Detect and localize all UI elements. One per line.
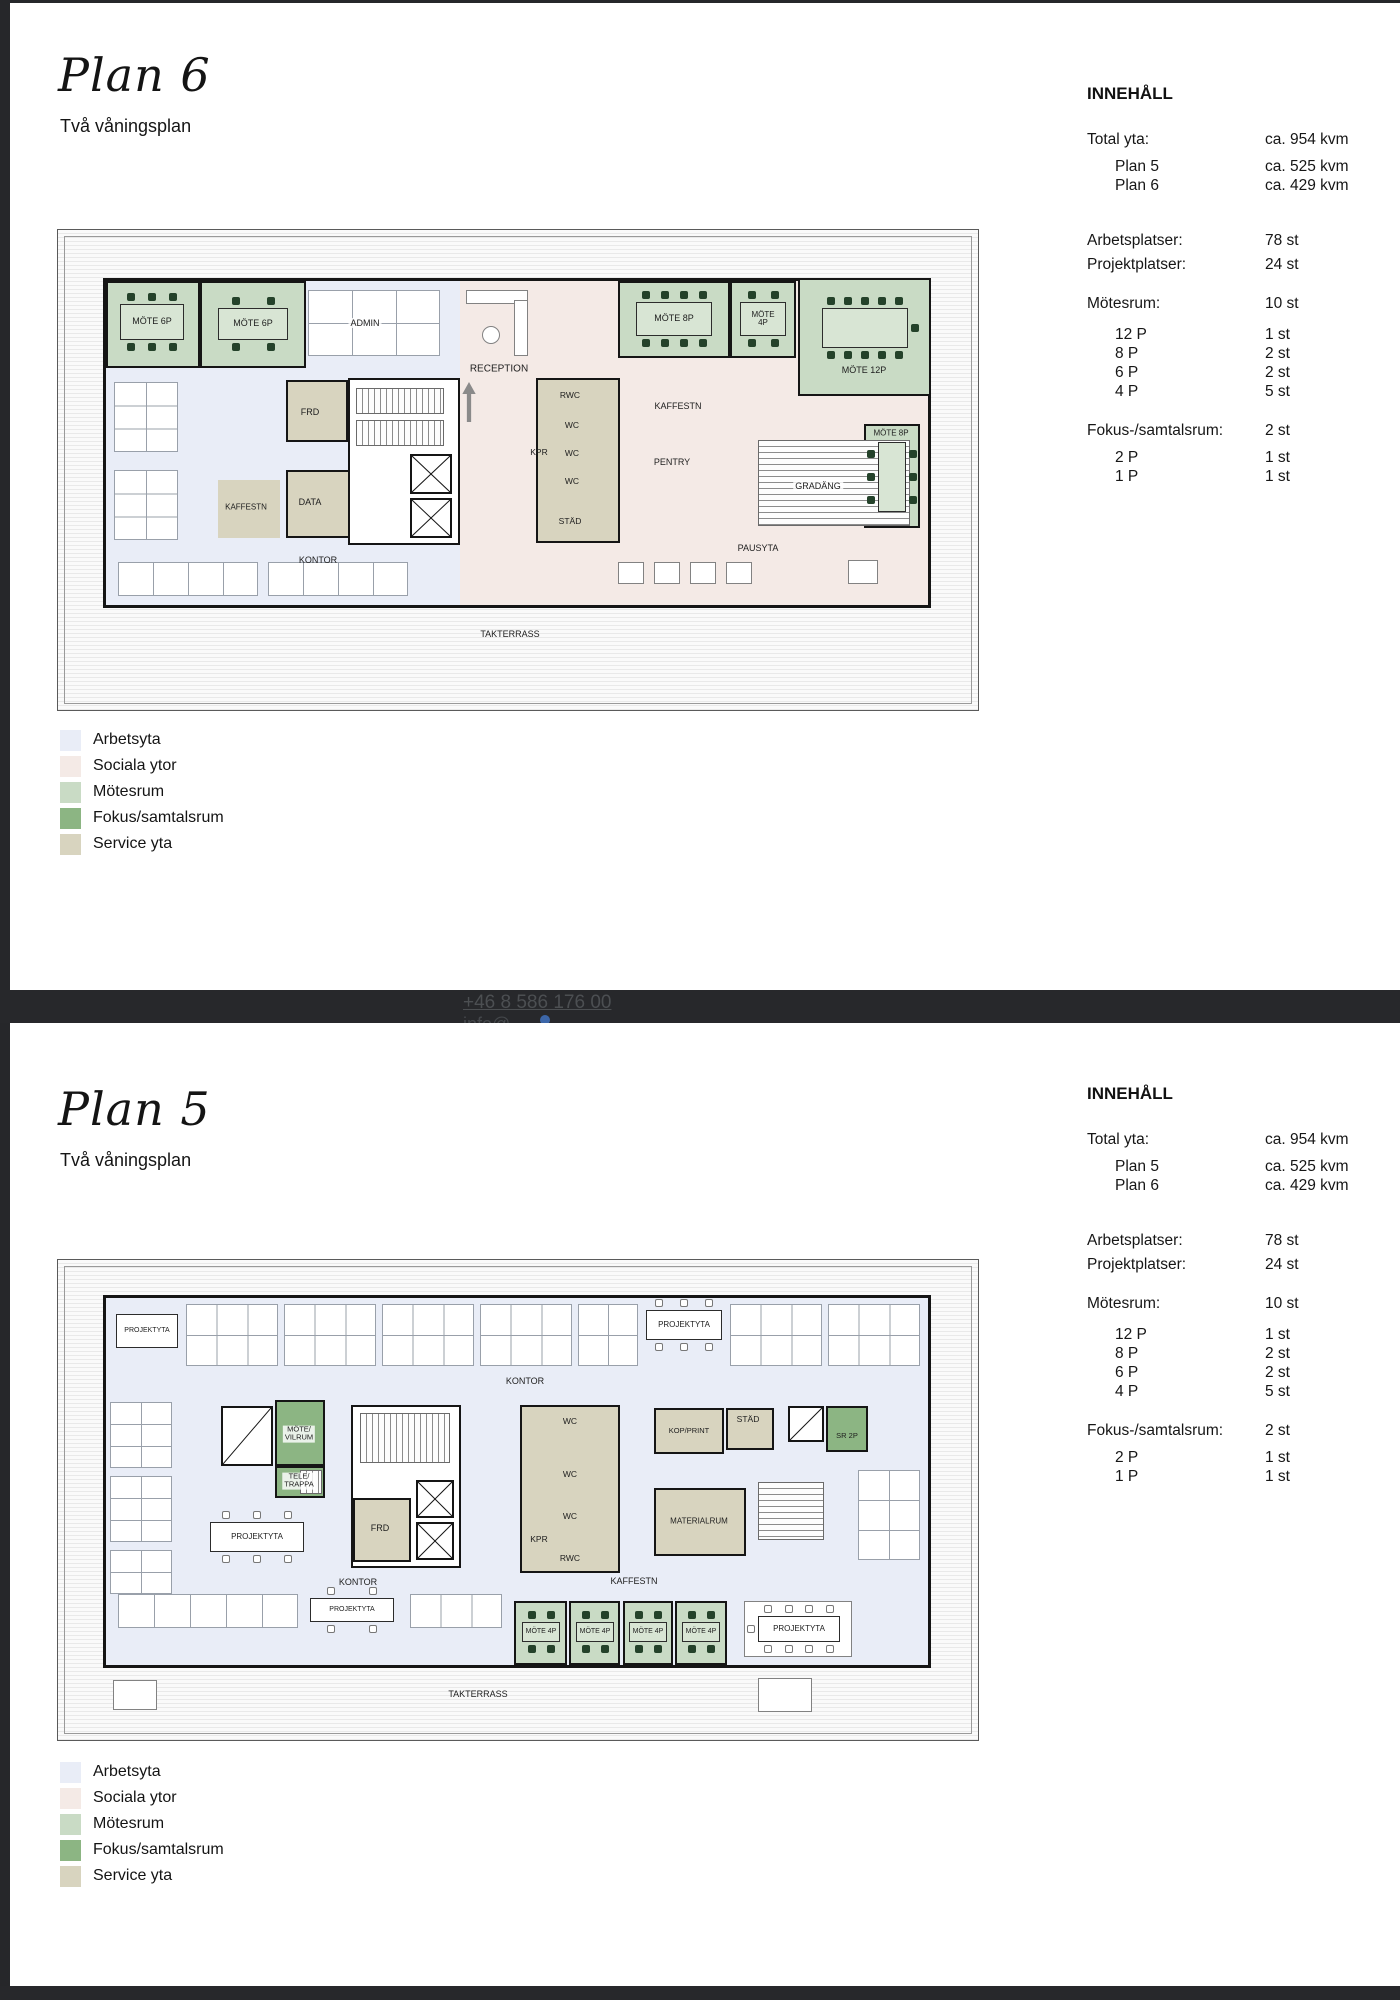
plan-label-kontor: KONTOR: [299, 555, 337, 565]
innehall-rows: Total yta:ca. 954 kvmPlan 5ca. 525 kvmPl…: [1087, 130, 1387, 486]
plan-label-städ: STÄD: [737, 1415, 760, 1425]
plan-label-wc: WC: [563, 1470, 577, 1480]
innehall-row-value: 2 st: [1265, 421, 1290, 440]
innehall-row-value: 24 st: [1265, 1255, 1299, 1274]
plan-outline: [758, 1678, 812, 1712]
legend-swatch: [60, 808, 81, 829]
innehall-row-label: Total yta:: [1087, 130, 1265, 149]
plan-label-materialrum: MATERIALRUM: [670, 1518, 728, 1527]
innehall-row-label: 8 P: [1087, 1344, 1265, 1363]
plan-elevator: [410, 454, 452, 494]
plan-desks: [186, 1304, 278, 1366]
innehall-row-value: 1 st: [1265, 325, 1290, 344]
innehall-row: Plan 6ca. 429 kvm: [1087, 1176, 1387, 1195]
plan-table-möte-8p: MÖTE 8P: [636, 302, 712, 336]
plan-label-möte-8p: MÖTE 8P: [873, 430, 908, 439]
chair-icon: [148, 293, 156, 301]
chair-icon: [878, 351, 886, 359]
plan-outline: [113, 1680, 157, 1710]
innehall-row: Fokus-/samtalsrum:2 st: [1087, 1421, 1387, 1440]
innehall-row: 4 P5 st: [1087, 1382, 1387, 1401]
innehall-row: Mötesrum:10 st: [1087, 1294, 1387, 1313]
plan-desks: [268, 562, 408, 596]
plan-table: [878, 442, 906, 512]
chair-icon: [707, 1645, 715, 1653]
legend-item: Service yta: [60, 831, 224, 857]
plan-label-wc: WC: [565, 449, 579, 459]
chair-icon: [867, 450, 875, 458]
innehall-row-value: 1 st: [1265, 1467, 1290, 1486]
plan-desks: [410, 1594, 502, 1628]
plan-stairs: [360, 1413, 450, 1463]
plan-label-sr-2p: SR 2P: [836, 1432, 858, 1440]
innehall-row: 8 P2 st: [1087, 344, 1387, 363]
chair-icon: [222, 1511, 230, 1519]
innehall-row: 12 P1 st: [1087, 1325, 1387, 1344]
plan-desks: [118, 562, 258, 596]
plan-label-reception: RECEPTION: [470, 363, 528, 374]
innehall-row-label: Mötesrum:: [1087, 294, 1265, 313]
chair-icon: [528, 1611, 536, 1619]
plan-label-gradäng: GRADÄNG: [793, 481, 843, 491]
plan-label-kaffestn: KAFFESTN: [225, 504, 267, 513]
innehall-row: Mötesrum:10 st: [1087, 294, 1387, 313]
chair-icon: [680, 1299, 688, 1307]
plan-room: [826, 1406, 868, 1452]
chair-icon: [764, 1605, 772, 1613]
plan-elevator: [416, 1522, 454, 1560]
innehall-row-value: 10 st: [1265, 1294, 1299, 1313]
chair-icon: [635, 1645, 643, 1653]
innehall-row-label: Mötesrum:: [1087, 1294, 1265, 1313]
legend-label: Sociala ytor: [93, 757, 177, 775]
entry-arrow-icon: [462, 382, 476, 422]
innehall-row-label: Plan 6: [1087, 176, 1265, 195]
innehall-row-label: Fokus-/samtalsrum:: [1087, 421, 1265, 440]
innehall-heading: INNEHÅLL: [1087, 1084, 1387, 1104]
chair-icon: [680, 1343, 688, 1351]
legend: ArbetsytaSociala ytorMötesrumFokus/samta…: [60, 1759, 224, 1889]
chair-icon: [169, 293, 177, 301]
innehall-row: 1 P1 st: [1087, 467, 1387, 486]
legend-item: Mötesrum: [60, 779, 224, 805]
page-canvas: Plan 6 Två våningsplan INNEHÅLL Total yt…: [0, 0, 1400, 2000]
plan-label-kaffestn: KAFFESTN: [610, 1576, 657, 1586]
chair-icon: [911, 324, 919, 332]
plan-desks: [114, 470, 178, 540]
plan-table-möte-4p: MÖTE 4P: [522, 1622, 560, 1642]
innehall-row-value: ca. 954 kvm: [1265, 1130, 1349, 1149]
chair-icon: [844, 351, 852, 359]
chair-icon: [148, 343, 156, 351]
legend-item: Sociala ytor: [60, 1785, 224, 1811]
legend-label: Fokus/samtalsrum: [93, 1841, 224, 1859]
innehall-row: 8 P2 st: [1087, 1344, 1387, 1363]
plan-table-möte-4p: MÖTE 4P: [576, 1622, 614, 1642]
chair-icon: [785, 1645, 793, 1653]
plan-label-kontor: KONTOR: [506, 1376, 544, 1386]
innehall-row: 12 P1 st: [1087, 325, 1387, 344]
plan-desks: [110, 1402, 172, 1468]
plan-label-rwc: RWC: [560, 1554, 580, 1564]
innehall-row-label: 8 P: [1087, 344, 1265, 363]
chair-icon: [267, 297, 275, 305]
legend-swatch: [60, 834, 81, 855]
chair-icon: [827, 297, 835, 305]
legend-item: Service yta: [60, 1863, 224, 1889]
chair-icon: [909, 496, 917, 504]
legend-item: Mötesrum: [60, 1811, 224, 1837]
plan-label-takterrass: TAKTERRASS: [480, 629, 539, 639]
chair-icon: [642, 339, 650, 347]
chair-icon: [327, 1625, 335, 1633]
chair-icon: [127, 343, 135, 351]
plan-xbox: [788, 1406, 824, 1442]
innehall-row-value: 24 st: [1265, 255, 1299, 274]
legend-item: Fokus/samtalsrum: [60, 805, 224, 831]
plan-table-projektyta: PROJEKTYTA: [758, 1616, 840, 1642]
innehall-row-label: Plan 6: [1087, 1176, 1265, 1195]
innehall-row-label: 2 P: [1087, 1448, 1265, 1467]
plan-circ: [482, 326, 500, 344]
plan-outline: [654, 562, 680, 584]
plan-label-kpr: KPR: [530, 1535, 547, 1545]
chair-icon: [764, 1645, 772, 1653]
plan-label-takterrass: TAKTERRASS: [448, 1689, 507, 1699]
legend-label: Arbetsyta: [93, 731, 161, 749]
chair-icon: [267, 343, 275, 351]
legend-label: Mötesrum: [93, 783, 164, 801]
legend-item: Sociala ytor: [60, 753, 224, 779]
innehall-heading: INNEHÅLL: [1087, 84, 1387, 104]
innehall-row-label: 1 P: [1087, 1467, 1265, 1486]
floorplan-plan6: MÖTE 6PMÖTE 6PMÖTE 8PMÖTE 4PADMINRECEPTI…: [57, 229, 979, 711]
innehall-row-label: Fokus-/samtalsrum:: [1087, 1421, 1265, 1440]
plan-label-wc: WC: [563, 1417, 577, 1427]
chair-icon: [747, 1625, 755, 1633]
chair-icon: [582, 1611, 590, 1619]
plan-stairs: [356, 388, 444, 414]
chair-icon: [369, 1587, 377, 1595]
innehall-row-label: Arbetsplatser:: [1087, 1231, 1265, 1250]
chair-icon: [547, 1611, 555, 1619]
innehall-row-label: 2 P: [1087, 448, 1265, 467]
chair-icon: [827, 351, 835, 359]
plan-label-wc: WC: [563, 1512, 577, 1522]
legend-label: Mötesrum: [93, 1815, 164, 1833]
chair-icon: [661, 339, 669, 347]
plan-label-kop-print: KOP/PRINT: [669, 1427, 709, 1435]
page-subtitle: Två våningsplan: [60, 116, 191, 137]
legend-item: Arbetsyta: [60, 1759, 224, 1785]
chair-icon: [601, 1611, 609, 1619]
legend-swatch: [60, 1866, 81, 1887]
innehall-row-value: ca. 525 kvm: [1265, 157, 1349, 176]
plan-desks: [730, 1304, 822, 1366]
chair-icon: [861, 351, 869, 359]
plan-label-städ: STÄD: [559, 517, 582, 527]
legend: ArbetsytaSociala ytorMötesrumFokus/samta…: [60, 727, 224, 857]
plan-desks: [480, 1304, 572, 1366]
floorplan-plan5: MÖTE 4PMÖTE 4PMÖTE 4PMÖTE 4PPROJEKTYTAPR…: [57, 1259, 979, 1741]
innehall-row: 2 P1 st: [1087, 1448, 1387, 1467]
innehall-row: 2 P1 st: [1087, 448, 1387, 467]
plan-table-möte-4p: MÖTE 4P: [629, 1622, 667, 1642]
chair-icon: [528, 1645, 536, 1653]
plan-outline: [848, 560, 878, 584]
chair-icon: [232, 343, 240, 351]
innehall-row-value: 1 st: [1265, 467, 1290, 486]
plan-desks: [578, 1304, 638, 1366]
chair-icon: [169, 343, 177, 351]
chair-icon: [654, 1611, 662, 1619]
plan-table-möte-6p: MÖTE 6P: [120, 304, 184, 340]
innehall-row-value: 78 st: [1265, 1231, 1299, 1250]
innehall-row: 6 P2 st: [1087, 363, 1387, 382]
legend-swatch: [60, 1788, 81, 1809]
innehall-row-label: 6 P: [1087, 363, 1265, 382]
plan-outline: [514, 300, 528, 356]
chair-icon: [805, 1605, 813, 1613]
legend-swatch: [60, 1762, 81, 1783]
plan-table-projektyta: PROJEKTYTA: [646, 1310, 722, 1340]
plan-label-kontor: KONTOR: [339, 1577, 377, 1587]
chair-icon: [844, 297, 852, 305]
plan-label-admin: ADMIN: [349, 318, 382, 328]
chair-icon: [369, 1625, 377, 1633]
innehall-row-label: 6 P: [1087, 1363, 1265, 1382]
plan-desks: [382, 1304, 474, 1366]
plan-outline: [726, 562, 752, 584]
plan-desks: [110, 1550, 172, 1594]
plan-room: [520, 1405, 620, 1573]
innehall-row-value: 2 st: [1265, 1344, 1290, 1363]
chair-icon: [705, 1343, 713, 1351]
plan-label-frd: FRD: [371, 1523, 390, 1533]
innehall-row-value: 10 st: [1265, 294, 1299, 313]
plan-desks: [114, 382, 178, 452]
chair-icon: [826, 1605, 834, 1613]
plan-outline: [618, 562, 644, 584]
innehall-row: 6 P2 st: [1087, 1363, 1387, 1382]
page-title: Plan 6: [58, 48, 211, 102]
top-edge-bar: [0, 0, 1400, 3]
innehall-row-label: Plan 5: [1087, 157, 1265, 176]
innehall-row: Arbetsplatser:78 st: [1087, 1231, 1387, 1250]
legend-swatch: [60, 1840, 81, 1861]
innehall-row: 1 P1 st: [1087, 1467, 1387, 1486]
plan-desks: [118, 1594, 298, 1628]
innehall-panel: INNEHÅLL Total yta:ca. 954 kvmPlan 5ca. …: [1087, 84, 1387, 486]
chair-icon: [688, 1645, 696, 1653]
chair-icon: [867, 473, 875, 481]
chair-icon: [771, 339, 779, 347]
innehall-row: Projektplatser:24 st: [1087, 1255, 1387, 1274]
page-title: Plan 5: [58, 1082, 211, 1136]
bottom-separator-band: [0, 1986, 1400, 2000]
legend-swatch: [60, 782, 81, 803]
chair-icon: [601, 1645, 609, 1653]
plan-stairs: [758, 1482, 824, 1540]
innehall-row: Projektplatser:24 st: [1087, 255, 1387, 274]
plan-table-möte-4p: MÖTE 4P: [740, 302, 786, 336]
plan-desks: [858, 1470, 920, 1560]
plan-label-data: DATA: [299, 497, 322, 507]
chair-icon: [707, 1611, 715, 1619]
plan-table-projektyta: PROJEKTYTA: [116, 1314, 178, 1348]
plan-desks: [110, 1476, 172, 1542]
innehall-rows: Total yta:ca. 954 kvmPlan 5ca. 525 kvmPl…: [1087, 1130, 1387, 1486]
innehall-row: 4 P5 st: [1087, 382, 1387, 401]
innehall-row-value: ca. 429 kvm: [1265, 1176, 1349, 1195]
chair-icon: [547, 1645, 555, 1653]
phone-link[interactable]: +46 8 586 176 00: [463, 992, 611, 1014]
chair-icon: [327, 1587, 335, 1595]
chair-icon: [127, 293, 135, 301]
innehall-row-value: 2 st: [1265, 1363, 1290, 1382]
page-separator-band: +46 8 586 176 00 info@: [0, 990, 1400, 1023]
chair-icon: [655, 1343, 663, 1351]
innehall-row: Plan 6ca. 429 kvm: [1087, 176, 1387, 195]
legend-label: Sociala ytor: [93, 1789, 177, 1807]
chair-icon: [785, 1605, 793, 1613]
chair-icon: [748, 339, 756, 347]
innehall-row-value: 1 st: [1265, 1448, 1290, 1467]
innehall-row: Total yta:ca. 954 kvm: [1087, 130, 1387, 149]
page-plan6: Plan 6 Två våningsplan INNEHÅLL Total yt…: [0, 0, 1400, 990]
plan-label-wc: WC: [565, 421, 579, 431]
innehall-row-label: Projektplatser:: [1087, 255, 1265, 274]
innehall-row-value: 5 st: [1265, 1382, 1290, 1401]
innehall-row-label: Arbetsplatser:: [1087, 231, 1265, 250]
innehall-row-label: 1 P: [1087, 467, 1265, 486]
plan-table-projektyta: PROJEKTYTA: [210, 1522, 304, 1552]
plan-elevator: [410, 498, 452, 538]
innehall-row-value: 1 st: [1265, 1325, 1290, 1344]
chair-icon: [582, 1645, 590, 1653]
chair-icon: [895, 297, 903, 305]
legend-item: Fokus/samtalsrum: [60, 1837, 224, 1863]
innehall-row-label: 12 P: [1087, 1325, 1265, 1344]
plan-label-frd: FRD: [301, 407, 320, 417]
plan-label-wc: WC: [565, 477, 579, 487]
innehall-row-value: 2 st: [1265, 1421, 1290, 1440]
chair-icon: [655, 1299, 663, 1307]
chair-icon: [642, 291, 650, 299]
plan-elevator: [416, 1480, 454, 1518]
plan-label-möte-12p: MÖTE 12P: [842, 365, 887, 375]
legend-label: Service yta: [93, 1867, 172, 1885]
chair-icon: [284, 1555, 292, 1563]
chair-icon: [654, 1645, 662, 1653]
legend-label: Service yta: [93, 835, 172, 853]
innehall-row-label: Total yta:: [1087, 1130, 1265, 1149]
innehall-row-label: 12 P: [1087, 325, 1265, 344]
plan-outline: [690, 562, 716, 584]
chair-icon: [805, 1645, 813, 1653]
innehall-row: Plan 5ca. 525 kvm: [1087, 157, 1387, 176]
plan-desks: [828, 1304, 920, 1366]
plan-table: [822, 308, 908, 348]
innehall-row-value: 2 st: [1265, 363, 1290, 382]
innehall-row-value: ca. 954 kvm: [1265, 130, 1349, 149]
chair-icon: [867, 496, 875, 504]
legend-swatch: [60, 756, 81, 777]
plan-xbox: [221, 1406, 273, 1466]
innehall-row: Plan 5ca. 525 kvm: [1087, 1157, 1387, 1176]
chair-icon: [748, 291, 756, 299]
chair-icon: [705, 1299, 713, 1307]
plan-label-kpr: KPR: [530, 448, 547, 458]
plan-desks: [284, 1304, 376, 1366]
innehall-row-label: Projektplatser:: [1087, 1255, 1265, 1274]
plan-table-projektyta: PROJEKTYTA: [310, 1598, 394, 1622]
legend-item: Arbetsyta: [60, 727, 224, 753]
innehall-row-value: 1 st: [1265, 448, 1290, 467]
chair-icon: [771, 291, 779, 299]
plan-label-pentry: PENTRY: [654, 457, 690, 467]
chair-icon: [878, 297, 886, 305]
innehall-row: Total yta:ca. 954 kvm: [1087, 1130, 1387, 1149]
plan-label-rwc: RWC: [560, 391, 580, 401]
chair-icon: [661, 291, 669, 299]
chair-icon: [699, 339, 707, 347]
chair-icon: [909, 450, 917, 458]
page-subtitle: Två våningsplan: [60, 1150, 191, 1171]
chair-icon: [253, 1555, 261, 1563]
legend-swatch: [60, 1814, 81, 1835]
plan-label-pausyta: PAUSYTA: [738, 543, 779, 553]
chair-icon: [222, 1555, 230, 1563]
plan-table-möte-4p: MÖTE 4P: [682, 1622, 720, 1642]
legend-label: Fokus/samtalsrum: [93, 809, 224, 827]
innehall-row: Arbetsplatser:78 st: [1087, 231, 1387, 250]
chair-icon: [680, 339, 688, 347]
innehall-row: Fokus-/samtalsrum:2 st: [1087, 421, 1387, 440]
plan-stairs: [356, 420, 444, 446]
chair-icon: [680, 291, 688, 299]
innehall-row-label: 4 P: [1087, 1382, 1265, 1401]
legend-label: Arbetsyta: [93, 1763, 161, 1781]
plan-label-tele--trappa: TELE/ TRAPPA: [282, 1473, 315, 1490]
innehall-row-value: 5 st: [1265, 382, 1290, 401]
innehall-row-value: 2 st: [1265, 344, 1290, 363]
plan-table-möte-6p: MÖTE 6P: [218, 308, 288, 340]
chair-icon: [895, 351, 903, 359]
page-plan5: Plan 5 Två våningsplan INNEHÅLL Total yt…: [0, 1022, 1400, 1985]
innehall-row-label: Plan 5: [1087, 1157, 1265, 1176]
plan-label-kaffestn: KAFFESTN: [654, 401, 701, 411]
chair-icon: [232, 297, 240, 305]
chair-icon: [635, 1611, 643, 1619]
chair-icon: [861, 297, 869, 305]
chair-icon: [699, 291, 707, 299]
plan-label-möte--vilrum: MÖTE/ VILRUM: [283, 1426, 315, 1443]
chair-icon: [688, 1611, 696, 1619]
legend-swatch: [60, 730, 81, 751]
innehall-row-label: 4 P: [1087, 382, 1265, 401]
innehall-row-value: 78 st: [1265, 231, 1299, 250]
chair-icon: [826, 1645, 834, 1653]
chair-icon: [284, 1511, 292, 1519]
chair-icon: [253, 1511, 261, 1519]
innehall-panel: INNEHÅLL Total yta:ca. 954 kvmPlan 5ca. …: [1087, 1084, 1387, 1486]
innehall-row-value: ca. 429 kvm: [1265, 176, 1349, 195]
innehall-row-value: ca. 525 kvm: [1265, 1157, 1349, 1176]
chair-icon: [909, 473, 917, 481]
